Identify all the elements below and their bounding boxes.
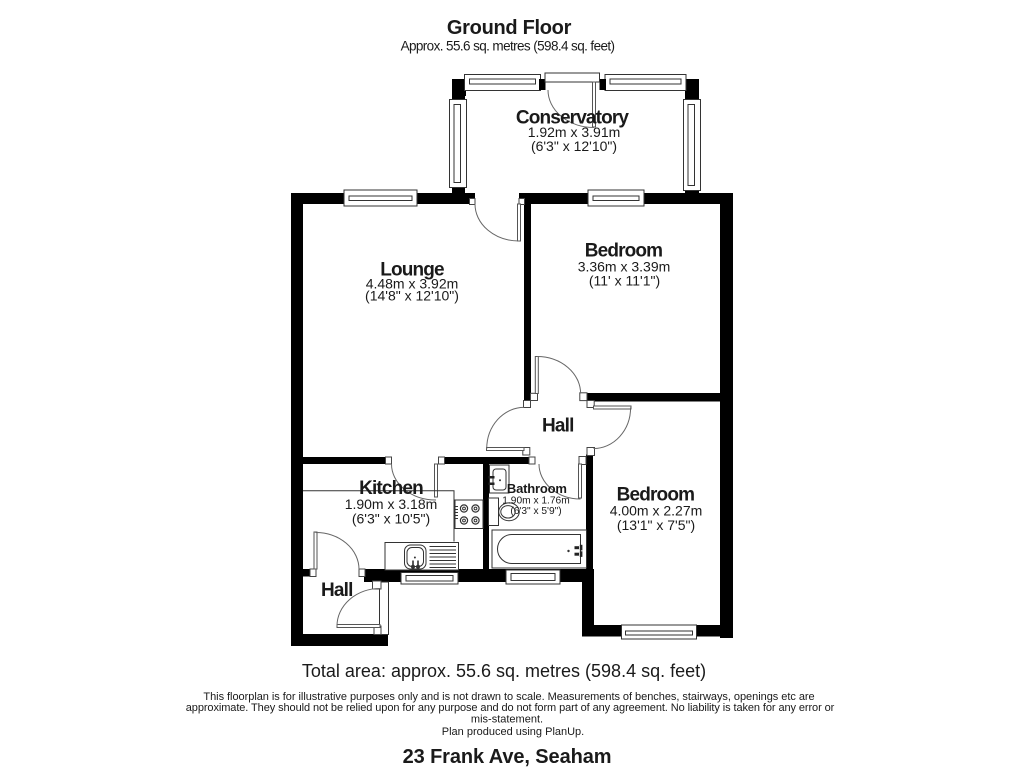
svg-text:Hall: Hall [321, 580, 353, 601]
svg-text:(11' x 11'1"): (11' x 11'1") [589, 273, 660, 289]
svg-text:(13'1" x 7'5"): (13'1" x 7'5") [617, 517, 695, 533]
svg-text:Ground Floor: Ground Floor [447, 17, 572, 39]
svg-text:23 Frank Ave, Seaham: 23 Frank Ave, Seaham [403, 746, 612, 768]
svg-text:(6'3" x 12'10"): (6'3" x 12'10") [531, 138, 617, 154]
svg-text:Hall: Hall [542, 416, 574, 437]
svg-text:mis-statement.: mis-statement. [471, 714, 543, 726]
svg-text:Plan produced using PlanUp.: Plan produced using PlanUp. [442, 726, 584, 738]
svg-text:(6'3" x 10'5"): (6'3" x 10'5") [352, 511, 430, 527]
svg-text:(6'3" x 5'9"): (6'3" x 5'9") [510, 506, 561, 517]
svg-text:1.90m x 1.76m: 1.90m x 1.76m [502, 496, 569, 507]
svg-text:Approx. 55.6 sq. metres (598.4: Approx. 55.6 sq. metres (598.4 sq. feet) [401, 39, 615, 54]
svg-text:Total area: approx. 55.6 sq. m: Total area: approx. 55.6 sq. metres (598… [302, 661, 706, 681]
svg-text:approximate. They should not b: approximate. They should not be relied u… [186, 702, 835, 714]
svg-text:(14'8" x 12'10"): (14'8" x 12'10") [365, 288, 459, 304]
svg-text:Bathroom: Bathroom [507, 481, 567, 496]
